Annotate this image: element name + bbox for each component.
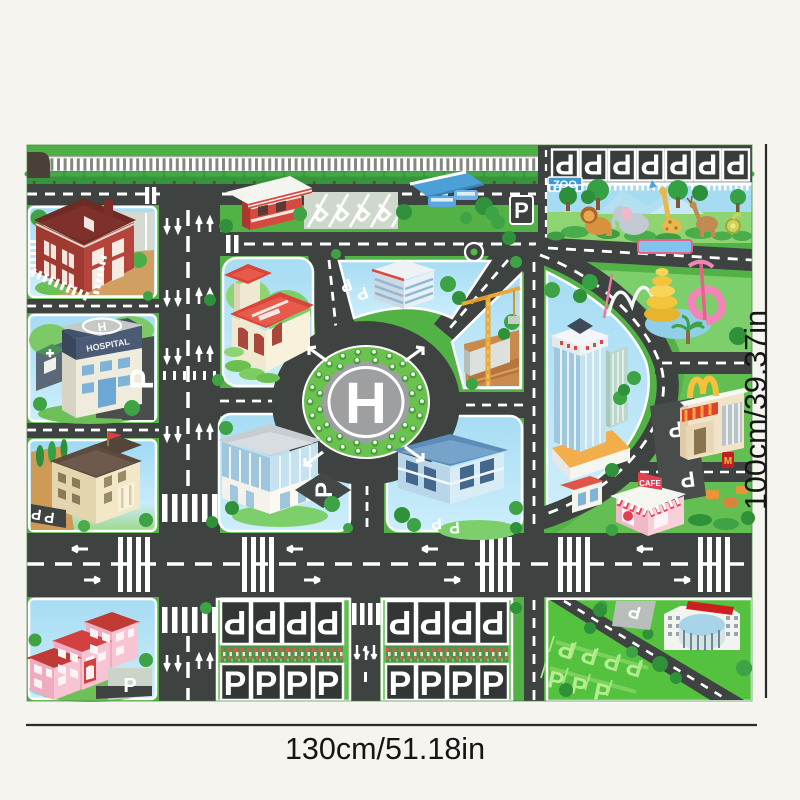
svg-text:H: H [345, 371, 387, 436]
svg-text:P: P [317, 603, 340, 641]
svg-text:P: P [389, 665, 412, 703]
svg-text:M: M [724, 456, 732, 467]
svg-text:P: P [482, 665, 505, 703]
svg-text:P: P [123, 675, 136, 697]
svg-text:P: P [430, 514, 442, 532]
svg-text:P: P [555, 148, 574, 180]
svg-text:P: P [311, 482, 338, 498]
svg-text:P: P [224, 665, 247, 703]
svg-text:P: P [389, 603, 412, 641]
svg-text:P: P [641, 148, 660, 180]
svg-text:130cm/51.18in: 130cm/51.18in [285, 732, 485, 766]
svg-text:P: P [612, 148, 631, 180]
svg-text:P: P [482, 603, 505, 641]
svg-text:P: P [124, 368, 160, 389]
svg-text:P: P [286, 665, 309, 703]
svg-text:P: P [420, 665, 443, 703]
svg-text:P: P [317, 665, 340, 703]
svg-text:P: P [255, 603, 278, 641]
svg-text:100cm/39.37in: 100cm/39.37in [739, 310, 773, 510]
svg-text:P: P [451, 603, 474, 641]
svg-text:P: P [286, 603, 309, 641]
svg-text:P: P [698, 148, 717, 180]
svg-text:P: P [514, 198, 529, 223]
svg-text:P: P [255, 665, 278, 703]
svg-text:P: P [669, 148, 688, 180]
svg-text:P: P [584, 148, 603, 180]
svg-text:P: P [448, 518, 460, 536]
svg-text:P: P [726, 148, 745, 180]
svg-text:CAFE: CAFE [639, 479, 661, 488]
svg-text:P: P [224, 603, 247, 641]
svg-text:P: P [451, 665, 474, 703]
svg-text:P: P [420, 603, 443, 641]
